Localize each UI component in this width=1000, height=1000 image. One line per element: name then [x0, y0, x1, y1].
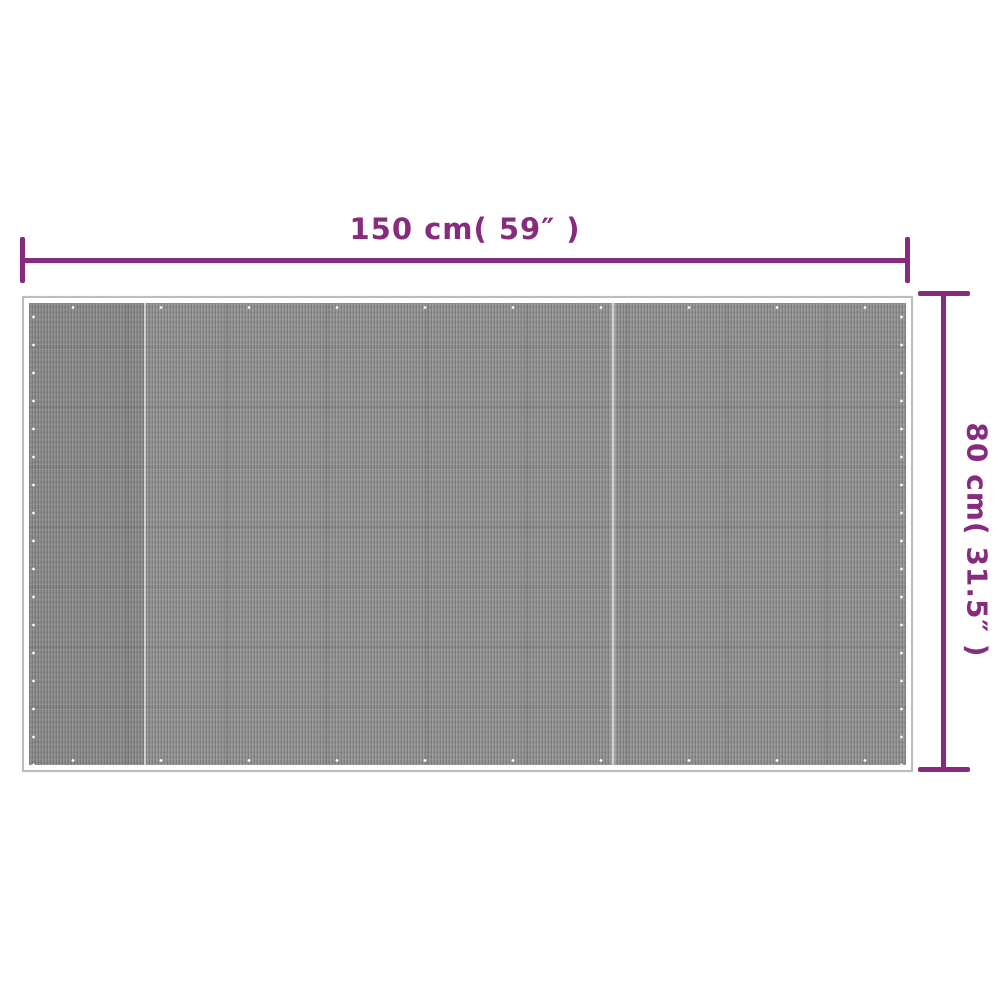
width-dimension-right-tick [905, 237, 910, 283]
stitch-dots-right [898, 303, 905, 765]
mesh-left-shade [29, 303, 144, 765]
mesh-mat-image [22, 296, 913, 772]
stitch-dots-top [29, 304, 906, 311]
width-dimension-left-tick [20, 237, 25, 283]
height-dimension-top-tick [918, 291, 970, 296]
mesh-seam-2 [612, 303, 614, 765]
width-dimension-line [22, 258, 908, 263]
stitch-dots-bottom [29, 757, 906, 764]
height-dimension-label: 80 cm( 31.5″ ) [961, 422, 994, 657]
mesh-texture [29, 303, 906, 765]
width-dimension-label: 150 cm( 59″ ) [22, 212, 908, 246]
product-dimension-diagram: 150 cm( 59″ ) 80 cm( 31.5″ ) [0, 0, 1000, 1000]
height-dimension-line [941, 293, 946, 770]
height-dimension-bottom-tick [918, 767, 970, 772]
mesh-seam-1 [144, 303, 146, 765]
